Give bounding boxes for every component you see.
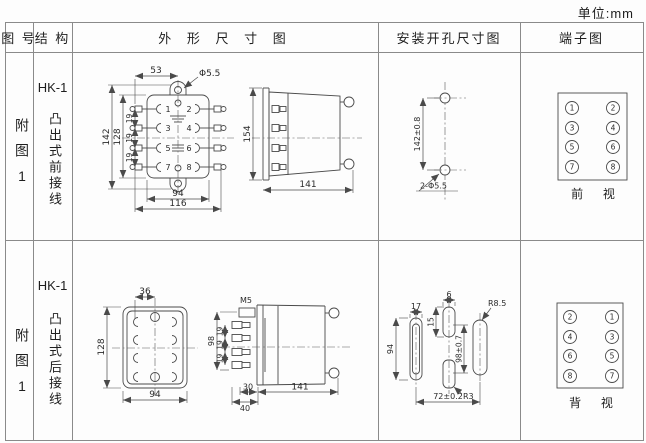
svg-text:8: 8: [568, 372, 573, 381]
svg-text:5: 5: [610, 352, 615, 361]
svg-text:R3: R3: [463, 392, 474, 401]
svg-text:1: 1: [570, 104, 575, 113]
svg-text:128: 128: [97, 338, 107, 355]
header-structure: 结 构: [33, 22, 72, 52]
svg-text:141: 141: [291, 383, 308, 393]
svg-text:3: 3: [570, 124, 575, 133]
svg-text:36: 36: [139, 287, 151, 297]
row2-side-view-body: [239, 305, 330, 385]
svg-text:72±0.2: 72±0.2: [433, 392, 463, 401]
svg-text:8: 8: [611, 163, 616, 172]
svg-text:M5: M5: [240, 296, 252, 305]
svg-text:2: 2: [611, 104, 616, 113]
svg-text:4: 4: [186, 124, 191, 133]
row1-figure-no: 附图1: [12, 118, 32, 195]
svg-text:19: 19: [216, 340, 225, 350]
svg-text:19: 19: [216, 327, 225, 337]
svg-text:94: 94: [149, 390, 161, 400]
svg-text:6: 6: [446, 290, 451, 299]
svg-text:128: 128: [113, 128, 123, 145]
svg-text:1: 1: [165, 105, 170, 114]
row2-model: HK-1: [33, 278, 72, 293]
svg-text:5: 5: [165, 144, 170, 153]
svg-text:5: 5: [570, 143, 575, 152]
svg-text:19: 19: [125, 133, 134, 143]
svg-text:19: 19: [125, 114, 134, 124]
svg-text:3: 3: [610, 333, 615, 342]
row1-side-view-studs: [272, 97, 354, 171]
row1-mounting-drawing: 142±0.8 2-Φ5.5: [378, 52, 520, 240]
header-mounting: 安装开孔尺寸图: [378, 22, 520, 52]
svg-text:Φ5.5: Φ5.5: [199, 69, 220, 79]
svg-text:7: 7: [610, 372, 615, 381]
svg-text:6: 6: [611, 143, 616, 152]
svg-text:53: 53: [150, 66, 161, 76]
svg-text:116: 116: [169, 199, 186, 209]
svg-text:30: 30: [243, 383, 253, 392]
svg-text:7: 7: [165, 163, 170, 172]
row2-terminal-numbers: 2 4 6 8 1 3 5 7: [568, 313, 615, 381]
row1-terminal-diagram: 1 3 5 7 2 4 6 8 前 视: [520, 52, 643, 240]
unit-label: 单位:mm: [578, 3, 634, 22]
svg-text:19: 19: [125, 153, 134, 163]
row2-front-dimensions: 36 128 94: [97, 287, 187, 403]
svg-text:17: 17: [411, 302, 421, 311]
svg-text:40: 40: [240, 404, 250, 413]
svg-text:19: 19: [216, 354, 225, 364]
svg-text:6: 6: [568, 352, 573, 361]
row2-figure-no: 附图1: [12, 328, 32, 405]
svg-text:94: 94: [172, 189, 184, 199]
row1-model: HK-1: [33, 80, 72, 95]
svg-text:7: 7: [570, 163, 575, 172]
svg-text:15: 15: [427, 317, 436, 327]
svg-text:4: 4: [611, 124, 616, 133]
row1-outline-drawing: 1 2 3 4 5 6 7 8 53 Φ5.5 142 128 19 19: [72, 52, 378, 240]
svg-text:154: 154: [243, 125, 253, 142]
row1-side-dimensions: 154 141: [243, 88, 353, 193]
row1-view-label: 前 视: [571, 186, 623, 201]
row2-outline-drawing: 36 128 94 M5: [72, 240, 378, 440]
svg-text:2: 2: [186, 105, 191, 114]
row1-terminal-numbers: 1 3 5 7 2 4 6 8: [570, 104, 616, 172]
svg-text:6: 6: [186, 144, 191, 153]
row2-mounting-slots: [410, 307, 487, 388]
header-terminal: 端子图: [520, 22, 643, 52]
datasheet-page: 单位:mm 图 号 结 构 外 形 尺 寸 图 安装开孔尺寸图 端子图 附图1 …: [0, 0, 646, 443]
row1-front-dimensions: 53 Φ5.5 142 128 19 19 19 94 116: [102, 66, 221, 212]
svg-text:3: 3: [165, 124, 170, 133]
svg-text:141: 141: [299, 180, 316, 190]
row2-terminal-diagram: 2 4 6 8 1 3 5 7 背 视: [520, 240, 643, 440]
svg-text:1: 1: [610, 313, 615, 322]
svg-text:142: 142: [102, 128, 112, 145]
row2-view-label: 背 视: [569, 395, 621, 410]
row1-mounting-dimensions: 142±0.8 2-Φ5.5: [413, 98, 458, 191]
row2-side-view-studs: [232, 308, 339, 378]
svg-text:94: 94: [386, 344, 395, 354]
svg-text:R8.5: R8.5: [488, 299, 506, 308]
row2-structure-desc: 凸出式后接线: [45, 312, 64, 408]
header-outline: 外 形 尺 寸 图: [72, 22, 378, 52]
svg-text:142±0.8: 142±0.8: [413, 117, 422, 152]
header-figure-no: 图 号: [5, 22, 33, 52]
row2-mounting-drawing: 17 6 15 94 98±0.7 R8.5 R3 72±0.2: [378, 240, 520, 440]
row1-front-terminal-numbers: 1 2 3 4 5 6 7 8: [165, 105, 191, 172]
row1-structure-desc: 凸出式前接线: [45, 112, 64, 208]
svg-text:8: 8: [186, 163, 191, 172]
svg-text:4: 4: [568, 333, 573, 342]
svg-text:98±0.7: 98±0.7: [455, 335, 464, 363]
svg-text:2: 2: [568, 313, 573, 322]
row2-side-dimensions: M5 98 19 19 19 30 40 141: [207, 296, 338, 413]
svg-text:2-Φ5.5: 2-Φ5.5: [420, 182, 447, 191]
